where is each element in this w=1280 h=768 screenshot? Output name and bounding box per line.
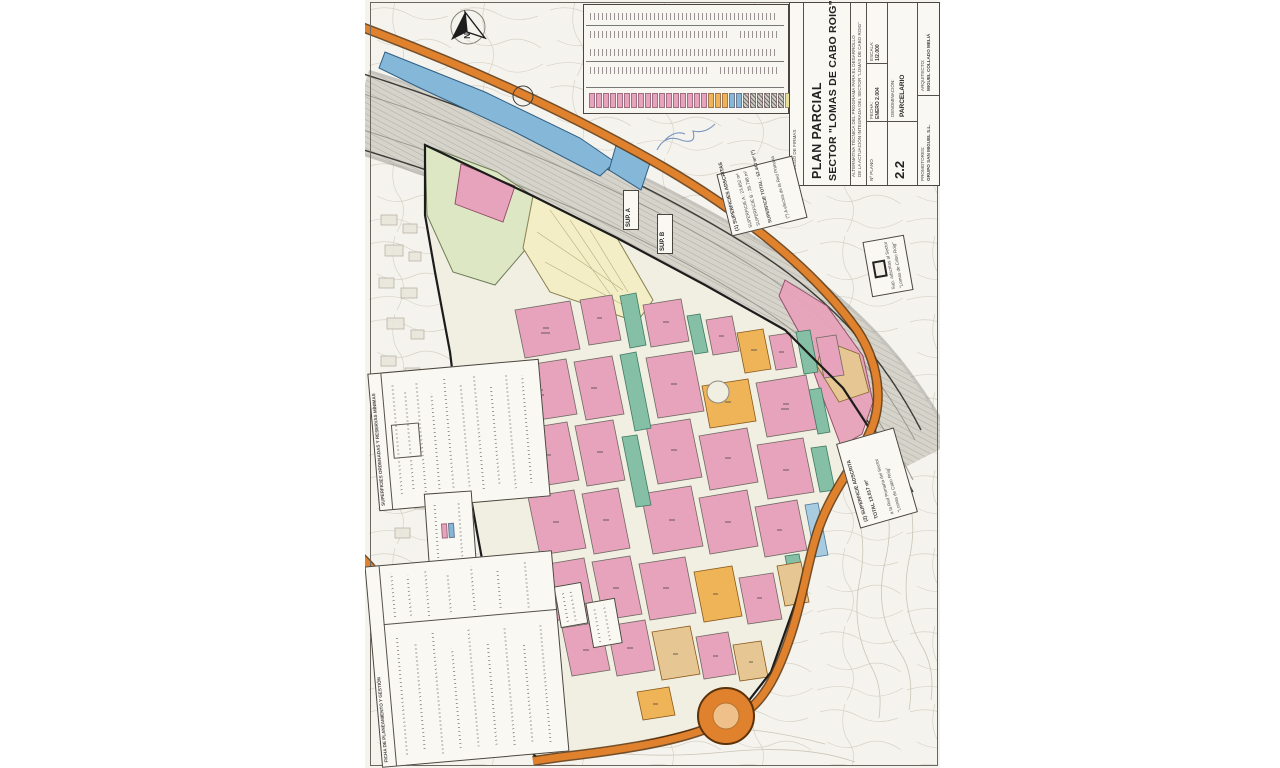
legend-swatch-infraestructura	[729, 93, 735, 108]
signatures-label: PLIEGO DE FIRMAS	[793, 33, 798, 173]
legend-swatch-viario	[750, 93, 756, 108]
sup-a-label-box: SUP. A	[623, 190, 639, 230]
legend-swatch-viario	[757, 93, 763, 108]
sup-a-label: SUP. A	[626, 193, 632, 227]
legend-swatch-viario	[771, 93, 777, 108]
legend-swatch-residencial	[596, 93, 602, 108]
legend-swatch-residencial	[673, 93, 679, 108]
legend-swatch-residencial	[694, 93, 700, 108]
ficha-table: FICHA DE PLANEAMIENTO Y GESTIÓN	[365, 550, 569, 768]
title-line2: SECTOR "LOMAS DE CABO ROIG"	[828, 9, 839, 181]
legend-swatch-residencial	[638, 93, 644, 108]
plan-sheet: N PLIEGO DE FIRMAS PLAN PARCIAL SECTOR "…	[365, 0, 940, 768]
legend-swatch-residencial	[589, 93, 595, 108]
usos-swatches	[441, 523, 456, 539]
legend-swatch-residencial	[645, 93, 651, 108]
legend-swatch-residencial	[624, 93, 630, 108]
scanned-plan-sheet-screenshot: { "palette": { "residential_pink": "#e8a…	[0, 0, 1280, 768]
title-block: PLIEGO DE FIRMAS PLAN PARCIAL SECTOR "LO…	[789, 2, 940, 186]
box1-note: (*) A efectos de la Red Primaria	[773, 163, 791, 219]
legend-swatch-residencial	[441, 523, 448, 538]
legend-swatch-residencial	[666, 93, 672, 108]
legend-swatch-residencial	[687, 93, 693, 108]
legend-swatch-viario	[764, 93, 770, 108]
title-line1: PLAN PARCIAL	[811, 11, 824, 179]
legend-swatch-terciario	[708, 93, 714, 108]
escala-label: ESCALA:	[870, 9, 875, 61]
legend-swatch-infraestructura	[736, 93, 742, 108]
legend-swatch-terciario	[715, 93, 721, 108]
legend-swatch-residencial	[631, 93, 637, 108]
sup-b-label-box: SUP. B	[657, 214, 673, 254]
legend-swatch-residencial	[652, 93, 658, 108]
legend-swatch-dotacional	[448, 523, 455, 538]
legend-swatch-viario	[778, 93, 784, 108]
sup-b-label: SUP. B	[660, 217, 666, 251]
denominacion-value: PARCELARIO	[900, 11, 907, 117]
plano-number: 2.2	[893, 129, 907, 179]
legend-swatch-residencial	[659, 93, 665, 108]
denominacion-label: DENOMINACIÓN:	[891, 11, 896, 117]
plano-label: Nº PLANO	[870, 125, 875, 181]
fecha-value: ENERO 2.004	[876, 67, 881, 119]
legend-swatch-residencial	[617, 93, 623, 108]
legend-swatch-residencial	[680, 93, 686, 108]
escala-value: 1/2.000	[876, 9, 881, 61]
ordenadas-table: SUPERFICIES ORDENADAS Y RESERVAS MÍNIMAS	[367, 359, 550, 511]
promotores-value: GRUPO SAN MIGUEL S.L.	[927, 99, 932, 181]
subtitle-line2: DE LA ACTUACIÓN INTEGRADA DEL SECTOR "LO…	[858, 13, 863, 177]
legend-parcel-table	[583, 4, 789, 114]
legend-swatch-residencial	[701, 93, 707, 108]
legend-swatch-residencial	[603, 93, 609, 108]
legend-swatch-residencial	[610, 93, 616, 108]
north-label: N	[464, 33, 472, 39]
arquitecto-value: MIGUEL COLLADO MELIÁ	[927, 7, 932, 91]
legend-swatch-terciario	[722, 93, 728, 108]
fecha-label: FECHA:	[870, 67, 875, 119]
legend-swatch-viario	[743, 93, 749, 108]
